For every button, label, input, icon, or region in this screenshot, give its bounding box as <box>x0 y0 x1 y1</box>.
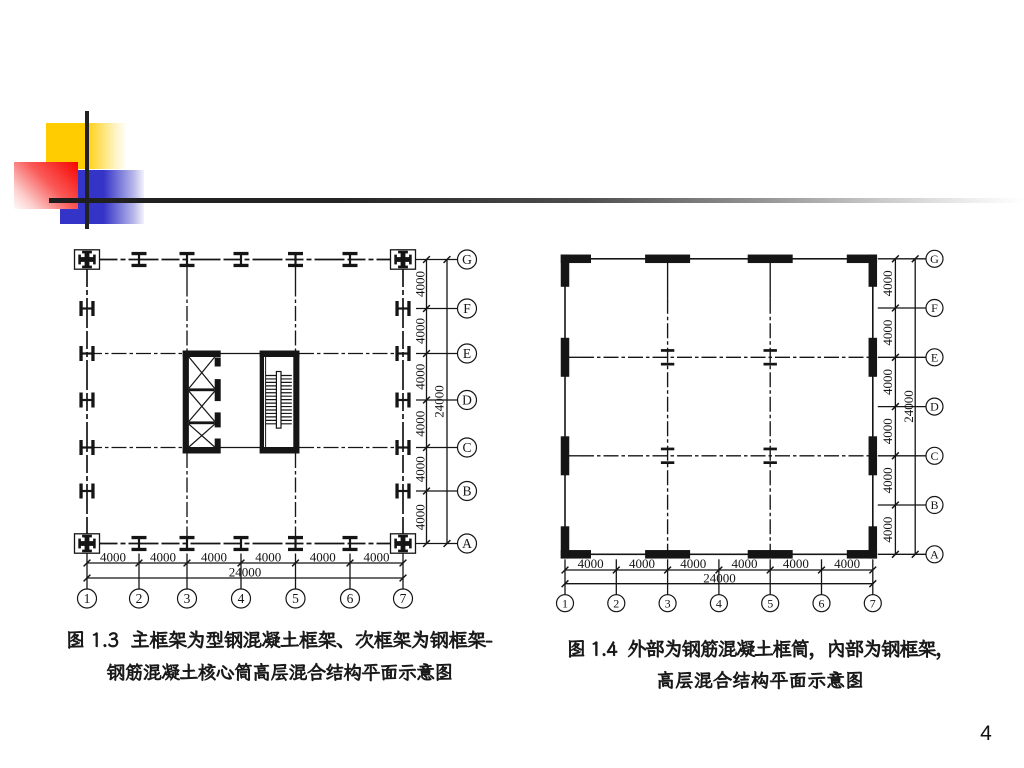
svg-text:D: D <box>930 400 939 414</box>
svg-text:A: A <box>462 536 472 551</box>
svg-text:4000: 4000 <box>412 456 427 482</box>
svg-text:A: A <box>930 547 939 561</box>
svg-text:24000: 24000 <box>229 565 262 580</box>
svg-text:6: 6 <box>347 591 354 606</box>
svg-text:5: 5 <box>767 596 773 610</box>
svg-text:E: E <box>931 350 938 364</box>
svg-text:5: 5 <box>292 591 299 606</box>
svg-text:4000: 4000 <box>201 549 227 564</box>
svg-text:4000: 4000 <box>629 556 655 571</box>
svg-text:4000: 4000 <box>880 369 895 395</box>
svg-text:C: C <box>462 440 471 455</box>
svg-text:4000: 4000 <box>880 418 895 444</box>
svg-text:C: C <box>930 449 938 463</box>
svg-text:4: 4 <box>716 596 722 610</box>
svg-text:3: 3 <box>665 596 671 610</box>
svg-text:4000: 4000 <box>255 549 281 564</box>
svg-text:7: 7 <box>400 591 407 606</box>
svg-text:G: G <box>930 252 939 266</box>
svg-text:2: 2 <box>613 596 619 610</box>
svg-text:B: B <box>462 484 471 499</box>
svg-text:24000: 24000 <box>703 570 736 585</box>
svg-text:F: F <box>463 301 471 316</box>
svg-text:4000: 4000 <box>412 271 427 297</box>
svg-text:4000: 4000 <box>783 556 809 571</box>
svg-text:D: D <box>462 393 472 408</box>
svg-text:F: F <box>931 301 938 315</box>
svg-text:4000: 4000 <box>412 504 427 530</box>
svg-text:E: E <box>463 346 471 361</box>
svg-text:4: 4 <box>238 591 245 606</box>
svg-text:4000: 4000 <box>310 549 336 564</box>
svg-text:4000: 4000 <box>880 320 895 346</box>
svg-text:B: B <box>930 498 938 512</box>
svg-text:2: 2 <box>136 591 143 606</box>
svg-text:4000: 4000 <box>150 549 176 564</box>
svg-text:4000: 4000 <box>834 556 860 571</box>
svg-text:4000: 4000 <box>680 556 706 571</box>
svg-text:7: 7 <box>870 596 876 610</box>
svg-text:4000: 4000 <box>412 411 427 437</box>
svg-text:1: 1 <box>84 591 91 606</box>
svg-text:4000: 4000 <box>880 517 895 543</box>
svg-text:4000: 4000 <box>880 467 895 493</box>
svg-text:3: 3 <box>184 591 191 606</box>
svg-text:G: G <box>462 252 472 267</box>
svg-text:4000: 4000 <box>100 549 126 564</box>
svg-text:6: 6 <box>819 596 825 610</box>
svg-text:1: 1 <box>562 596 568 610</box>
svg-text:4000: 4000 <box>364 549 390 564</box>
svg-text:4000: 4000 <box>732 556 758 571</box>
svg-text:24000: 24000 <box>901 390 916 423</box>
svg-text:4000: 4000 <box>412 364 427 390</box>
svg-text:4000: 4000 <box>880 270 895 296</box>
svg-text:4000: 4000 <box>578 556 604 571</box>
svg-text:4000: 4000 <box>412 318 427 344</box>
svg-text:24000: 24000 <box>432 385 447 418</box>
